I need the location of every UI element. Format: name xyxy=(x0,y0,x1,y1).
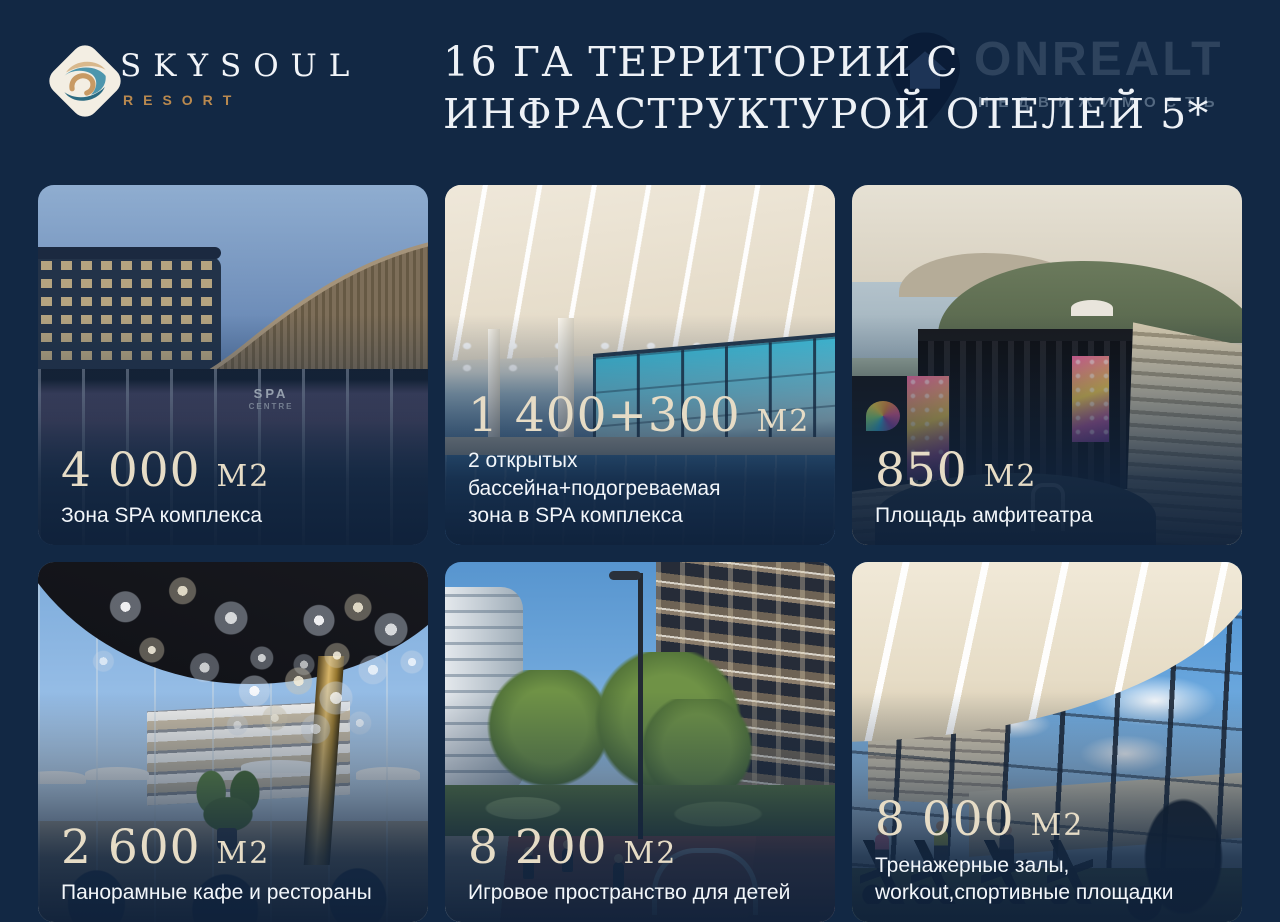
skysoul-logo-icon xyxy=(42,38,128,124)
brand-name: SKYSOUL xyxy=(120,48,361,84)
card-cafes: 2 600 М2 Панорамные кафе и рестораны xyxy=(38,562,428,922)
card-amphitheater: 850 М2 Площадь амфитеатра xyxy=(852,185,1242,545)
card-info: 1 400+300 М2 2 открытых бассейна+подогре… xyxy=(445,391,835,546)
page-title-line1: 16 ГА ТЕРРИТОРИИ С xyxy=(443,36,1210,88)
card-caption: Игровое пространство для детей xyxy=(468,879,812,907)
page-title-line2: ИНФРАСТРУКТУРОЙ ОТЕЛЕЙ 5* xyxy=(443,88,1210,140)
card-info: 8 200 М2 Игровое пространство для детей xyxy=(445,823,835,922)
card-info: 4 000 М2 Зона SPA комплекса xyxy=(38,446,428,545)
brand-subtitle: RESORT xyxy=(123,92,241,108)
card-pools: 1 400+300 М2 2 открытых бассейна+подогре… xyxy=(445,185,835,545)
area-value: 2 600 М2 xyxy=(61,823,405,872)
card-info: 8 000 М2 Тренажерные залы, workout,спорт… xyxy=(852,795,1242,922)
area-unit: М2 xyxy=(217,459,271,494)
area-unit: М2 xyxy=(624,836,678,871)
page-title: 16 ГА ТЕРРИТОРИИ С ИНФРАСТРУКТУРОЙ ОТЕЛЕ… xyxy=(443,36,1210,141)
card-info: 850 М2 Площадь амфитеатра xyxy=(852,446,1242,545)
card-caption: Тренажерные залы, workout,спортивные пло… xyxy=(875,852,1219,907)
area-unit: М2 xyxy=(1031,808,1085,843)
area-unit: М2 xyxy=(984,459,1038,494)
area-value: 1 400+300 М2 xyxy=(468,391,812,440)
card-playground: 8 200 М2 Игровое пространство для детей xyxy=(445,562,835,922)
area-unit: М2 xyxy=(757,404,811,439)
area-value: 8 200 М2 xyxy=(468,823,812,872)
card-caption: Площадь амфитеатра xyxy=(875,502,1219,530)
card-caption: Панорамные кафе и рестораны xyxy=(61,879,405,907)
area-value: 850 М2 xyxy=(875,446,1219,495)
area-unit: М2 xyxy=(217,836,271,871)
card-info: 2 600 М2 Панорамные кафе и рестораны xyxy=(38,823,428,922)
card-caption: Зона SPA комплекса xyxy=(61,502,405,530)
card-gym: 8 000 М2 Тренажерные залы, workout,спорт… xyxy=(852,562,1242,922)
area-value: 4 000 М2 xyxy=(61,446,405,495)
card-spa-zone: SPA CENTRE 4 000 М2 Зона SPA комплекса xyxy=(38,185,428,545)
skysoul-infographic-page: { "page": { "background": "#122844" }, "… xyxy=(0,0,1280,910)
card-caption: 2 открытых бассейна+подогреваемая зона в… xyxy=(468,447,812,530)
area-value: 8 000 М2 xyxy=(875,795,1219,844)
